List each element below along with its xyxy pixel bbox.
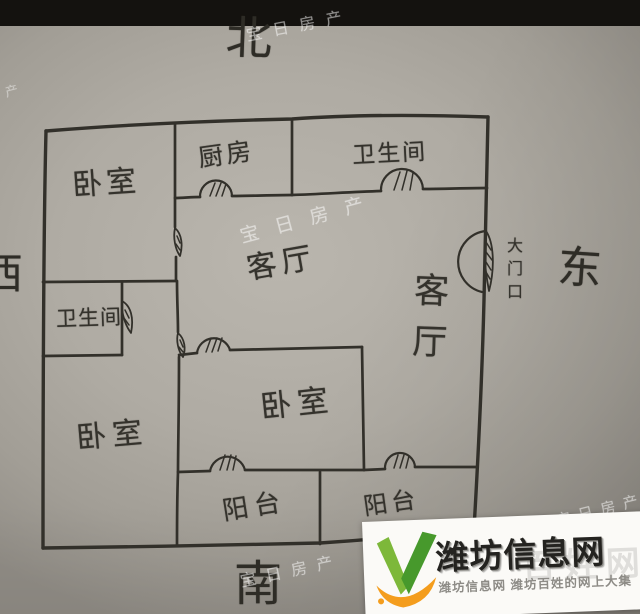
balcony-left-door-arc: [210, 455, 245, 471]
room-label-bedroom-sw: 卧室: [74, 407, 150, 457]
room-label-bathroom-north: 卫生间: [351, 132, 428, 170]
room-label-bedroom-center: 卧室: [258, 374, 336, 426]
balcony-right-door-arc: [385, 453, 415, 469]
room-label-living-east: 客厅: [400, 271, 455, 375]
bathroom-west-door-leaf: [122, 301, 132, 333]
hall-door-leaf-lower: [177, 333, 184, 357]
compass-east-label: 东: [556, 231, 604, 298]
compass-west-label: 西: [0, 240, 23, 301]
hall-door-leaf-upper: [174, 228, 181, 256]
entrance-label: 大门口: [500, 237, 524, 306]
checkmark-logo-icon: [370, 525, 441, 614]
floorplan-photo: 北 东 南 西 卧室 厨房 卫生间 客厅 卫生间 客厅 卧室 卧室 阳台 阳台 …: [0, 0, 640, 614]
weifang-info-logo-card: 百姓网 潍坊信息网 潍坊信息网 潍坊百姓的网上大集: [362, 511, 640, 614]
bedroom-center-door-arc: [197, 338, 230, 353]
entrance-door-arc: [458, 231, 493, 292]
room-label-bedroom-nw: 卧室: [71, 156, 142, 205]
room-label-bathroom-west: 卫生间: [55, 301, 122, 333]
bathroom-north-door-arc: [381, 169, 423, 191]
kitchen-door-arc: [200, 181, 232, 197]
